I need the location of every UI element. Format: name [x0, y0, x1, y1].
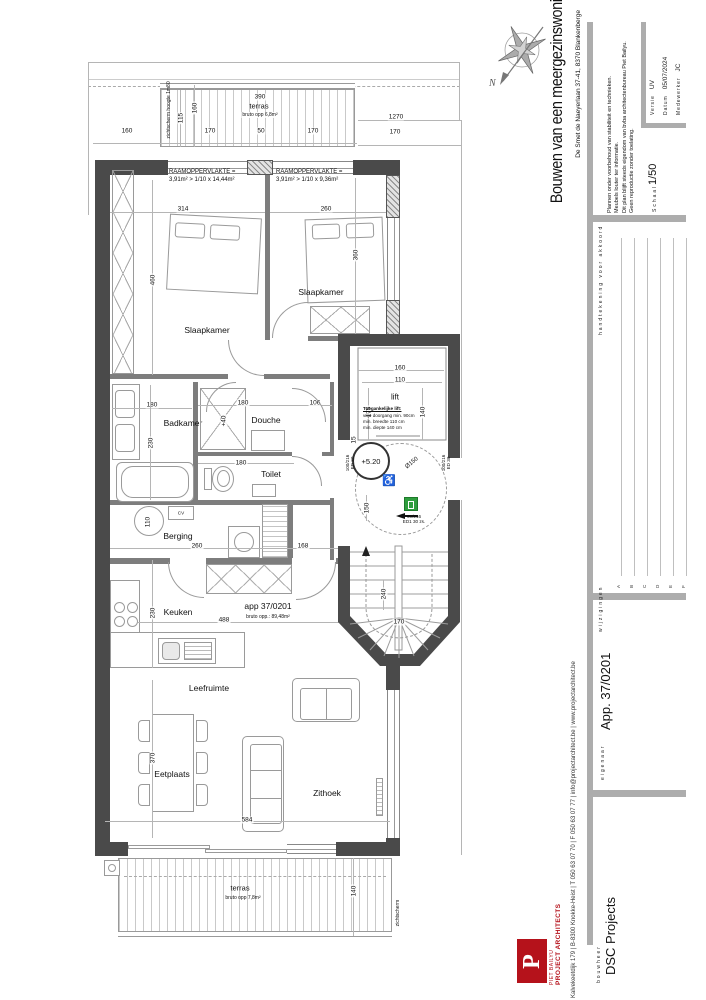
terrace-railing [118, 931, 392, 937]
dim-top-50: 50 [256, 128, 265, 135]
cooktop-burner [114, 602, 125, 613]
terrace-bottom-area: bruto opp 7,8m² [224, 895, 261, 901]
terrace-bottom-label: terras [230, 884, 249, 893]
sliding-door-leaf [128, 845, 210, 849]
washbasin [115, 424, 135, 452]
title-block-rule [587, 22, 593, 945]
wall-left [95, 160, 110, 856]
dim-berging-260: 260 [191, 543, 204, 550]
revision-letter: F [681, 585, 686, 588]
door-arc-entry [296, 562, 336, 600]
room-label-eetplaats: Eetplaats [154, 769, 189, 779]
dim-toilet-180: 180 [235, 460, 248, 467]
door-arc [168, 562, 204, 598]
compass-rose-icon [488, 18, 552, 90]
sofa-split [326, 688, 327, 720]
room-label-toilet: Toilet [261, 469, 281, 479]
revision-line [660, 238, 661, 576]
raam-right-line1: RAAMOPPERVLAKTE = [275, 169, 343, 176]
toilet-bowl-inner [217, 470, 230, 487]
schaal-label: Schaal [652, 185, 658, 212]
revisions-label: wijzigingen [598, 586, 604, 632]
terrace-awning-line [124, 876, 386, 877]
window-bedroom2 [387, 218, 400, 300]
datum-value: 05/07/2024 [662, 57, 669, 90]
dim-top-160: 160 [121, 128, 134, 135]
door-arc [292, 456, 322, 486]
window [287, 844, 336, 854]
medewerker-value: JC [675, 64, 682, 72]
door-arc [228, 340, 264, 376]
terrace-top-label: terras [249, 102, 268, 111]
lift-note-line1: vrije doorgang min. 90cm [362, 413, 416, 418]
fields-box-rule [641, 22, 646, 125]
dim-terras-115: 115 [178, 112, 185, 124]
dim-slk1-314: 314 [177, 206, 190, 213]
raam-right-line2: 3,91m² > 1/10 x 9,36m² [275, 177, 339, 184]
dim-boiler-110: 110 [145, 516, 152, 528]
window-living [387, 690, 400, 838]
dim-top-1270: 1270 [388, 114, 404, 121]
title-block-divider [592, 593, 686, 600]
cv-label: CV [177, 510, 185, 515]
title-block: Bouwen van een meergezinswoning De Smet … [546, 0, 706, 1000]
wall [95, 842, 128, 856]
stair-direction-arrow [362, 546, 370, 556]
cooktop-burner [114, 616, 125, 627]
wall-interior [264, 374, 330, 379]
dim-bad-180: 180 [146, 402, 159, 409]
roof-edge-line [88, 62, 89, 215]
schaal-value: 1/50 [647, 164, 659, 185]
dim-lift-15: 15 [351, 435, 358, 444]
dim-terras2-140: 140 [351, 885, 358, 898]
medewerker-label: Medewerker [676, 77, 682, 115]
lift-note-line2: min. breedte 110 cm [362, 419, 406, 424]
revision-line [647, 238, 648, 576]
pillow [210, 224, 241, 241]
bouwheer-value: DSC Projects [603, 897, 618, 975]
dim-leef-584: 584 [241, 817, 254, 824]
pillow [312, 224, 341, 240]
wall [353, 160, 400, 175]
chair [196, 752, 208, 774]
dim-line [138, 622, 345, 623]
wall-interior [288, 500, 293, 558]
terrace-screen-note: zichtscherm hoogte 1m80 [166, 80, 172, 139]
dim-line [194, 85, 195, 147]
wall-pier [386, 175, 400, 218]
title-block-divider [592, 790, 686, 797]
dim-berging-168: 168 [297, 543, 310, 550]
hall-closet [206, 564, 292, 594]
revision-letter: A [616, 585, 621, 588]
cabinet [251, 430, 285, 451]
washbasin [115, 390, 135, 418]
dim-top-170a: 170 [204, 128, 217, 135]
door-arc [292, 388, 326, 422]
sink-bowl [162, 642, 180, 660]
revision-letter: C [642, 585, 647, 588]
wall-interior [110, 558, 170, 564]
dim-eet-370: 370 [150, 752, 157, 765]
wall-interior [197, 452, 292, 456]
dim-line [358, 120, 461, 121]
dim-trap-170: 170 [393, 619, 406, 626]
room-label-lift: lift [391, 393, 399, 402]
raam-left-line2: 3,91m² > 1/10 x 14,44m² [168, 177, 236, 184]
dining-table [152, 714, 194, 812]
sofa-split [250, 798, 282, 799]
wall-interior [322, 452, 330, 456]
room-label-leefruimte: Leefruimte [189, 683, 229, 693]
wall-interior [330, 498, 334, 560]
wall-pier [247, 160, 273, 175]
room-label-badkamer: Badkamer [164, 418, 203, 428]
project-title: Bouwen van een meergezinswoning [547, 6, 567, 203]
firm-contact: Kalvekeetdijk 179 | B-8300 Knokke-Heist … [571, 661, 577, 998]
versie-row: VersieUV [649, 80, 656, 115]
dim-line [358, 145, 461, 146]
level-marker-value: +5.20 [361, 458, 382, 465]
chair [138, 720, 150, 742]
versie-value: UV [649, 80, 656, 89]
bouwheer-label: bouwheer [596, 945, 602, 983]
exit-sign-icon [404, 497, 418, 511]
firm-name-bottom: PROJECT ARCHITECTS [555, 904, 562, 985]
door-spec-right: 100/216 ED 30 [441, 454, 451, 473]
chair [138, 752, 150, 774]
revision-line [634, 238, 635, 576]
dim-lift-160: 160 [394, 365, 407, 372]
door-spec-bottom: 90/216 ED1 30 zs. [402, 514, 426, 524]
chair [138, 784, 150, 806]
room-label-berging: Berging [163, 531, 192, 541]
dim-trap-240: 240 [381, 588, 388, 601]
dim-douche-180: 180 [237, 400, 250, 407]
sink-drainer [184, 642, 212, 660]
firm-logo: P [517, 939, 547, 983]
sofa-split [250, 770, 282, 771]
radiator [376, 778, 383, 816]
dim-terras-160: 160 [192, 102, 199, 115]
dim-keuken-230: 230 [150, 607, 157, 620]
eigenaar-label: eigenaar [600, 745, 606, 780]
terrace-top-area: bruto opp 6,8m² [241, 112, 278, 118]
floor-plan-sheet: { "sheet": { "compass_label": "N" }, "ti… [0, 0, 706, 1000]
dim-top-170r: 170 [389, 129, 402, 136]
roof-edge-line [459, 62, 460, 120]
wall [336, 842, 400, 856]
wardrobe [112, 170, 134, 374]
wall-interior [110, 374, 228, 379]
door-spec-left-line2: ED 30 [350, 457, 355, 470]
door-arc [272, 302, 308, 338]
toilet-tank [204, 468, 212, 490]
dim-line [93, 143, 357, 144]
compass-north-label: N [489, 78, 496, 89]
bathtub-inner [121, 466, 189, 498]
chaise-seat [250, 744, 282, 824]
dim-keuken-488: 488 [218, 617, 231, 624]
versie-label: Versie [650, 95, 656, 115]
dim-lift-140: 140 [420, 406, 427, 419]
roof-edge-line [88, 79, 460, 80]
note-line2: Meubels louter ter informatie. [614, 41, 621, 213]
dim-lift-110: 110 [394, 377, 406, 384]
datum-label: Datum [663, 95, 669, 115]
eigenaar-value: App. 37/0201 [598, 653, 613, 730]
door-spec-bottom-line2: ED1 30 zs. [403, 519, 425, 524]
revision-letter: B [629, 585, 634, 588]
door-spec-right-line2: ED 30 [446, 457, 451, 470]
note-line1: Plannen onder voorbehoud van stabiliteit… [607, 41, 614, 213]
sliding-door-leaf [205, 849, 287, 853]
raam-left-line1: RAAMOPPERVLAKTE = [168, 169, 236, 176]
wheelchair-icon: ♿ [382, 474, 396, 487]
revision-line [673, 238, 674, 576]
title-block-divider [592, 215, 686, 222]
exit-sign-door [408, 501, 414, 509]
room-label-keuken: Keuken [164, 607, 193, 617]
project-address: De Smet de Naeyerlaan 37-41, 8370 Blanke… [575, 10, 582, 162]
firm-logo-letter: P [518, 954, 545, 969]
dim-hal-150: 150 [364, 502, 371, 515]
pillow [346, 223, 375, 239]
terrace-bottom-screen: zichtscherm [395, 899, 401, 928]
dim-slk1-460: 460 [150, 274, 157, 287]
room-label-zithoek: Zithoek [313, 788, 341, 798]
wall-interior [330, 382, 334, 456]
shower-level: +40 [221, 414, 228, 427]
washing-machine-door [234, 532, 254, 552]
room-label-slaapkamer2: Slaapkamer [298, 287, 343, 297]
wall-interior [265, 175, 270, 340]
dim-top-170b: 170 [307, 128, 320, 135]
chair [196, 720, 208, 742]
revision-line [621, 238, 622, 576]
apartment-label: app 37/0201 [244, 601, 291, 611]
pillow [175, 222, 206, 239]
room-label-douche: Douche [251, 415, 280, 425]
apartment-area: bruto opp.: 89,48m² [245, 614, 291, 620]
dim-terras-width: 390 [254, 94, 267, 101]
revision-letter: D [655, 585, 660, 588]
chair [196, 784, 208, 806]
revision-letter: E [668, 585, 673, 588]
dim-slk2-360: 360 [353, 249, 360, 262]
note-line4: Geen reproductie zonder toelating. [629, 41, 636, 213]
cooktop-burner [127, 616, 138, 627]
door-spec-left: 100/216 ED 30 [345, 454, 355, 473]
cooktop-burner [127, 602, 138, 613]
dim-slk2-260: 260 [320, 206, 333, 213]
drain [108, 864, 116, 872]
room-label-slaapkamer1: Slaapkamer [184, 325, 229, 335]
revision-line [686, 238, 687, 576]
lift-note-title: Toegankelijke lift: [362, 406, 402, 411]
hand-basin [252, 484, 276, 497]
lift-note-line3: min. diepte 140 cm [362, 425, 403, 430]
tall-cabinet [262, 504, 288, 558]
title-block-notes: Plannen onder voorbehoud van stabiliteit… [607, 41, 637, 213]
note-line3: Dit plan blijft steeds eigendom van bvba… [622, 41, 629, 213]
datum-row: Datum05/07/2024 [662, 57, 669, 115]
signature-label: handtekening voor akkoord [598, 225, 604, 335]
dim-bad-230: 230 [148, 437, 155, 450]
medewerker-row: MedewerkerJC [675, 64, 682, 115]
fields-box-rule [641, 123, 686, 128]
roof-edge-line [88, 62, 460, 63]
